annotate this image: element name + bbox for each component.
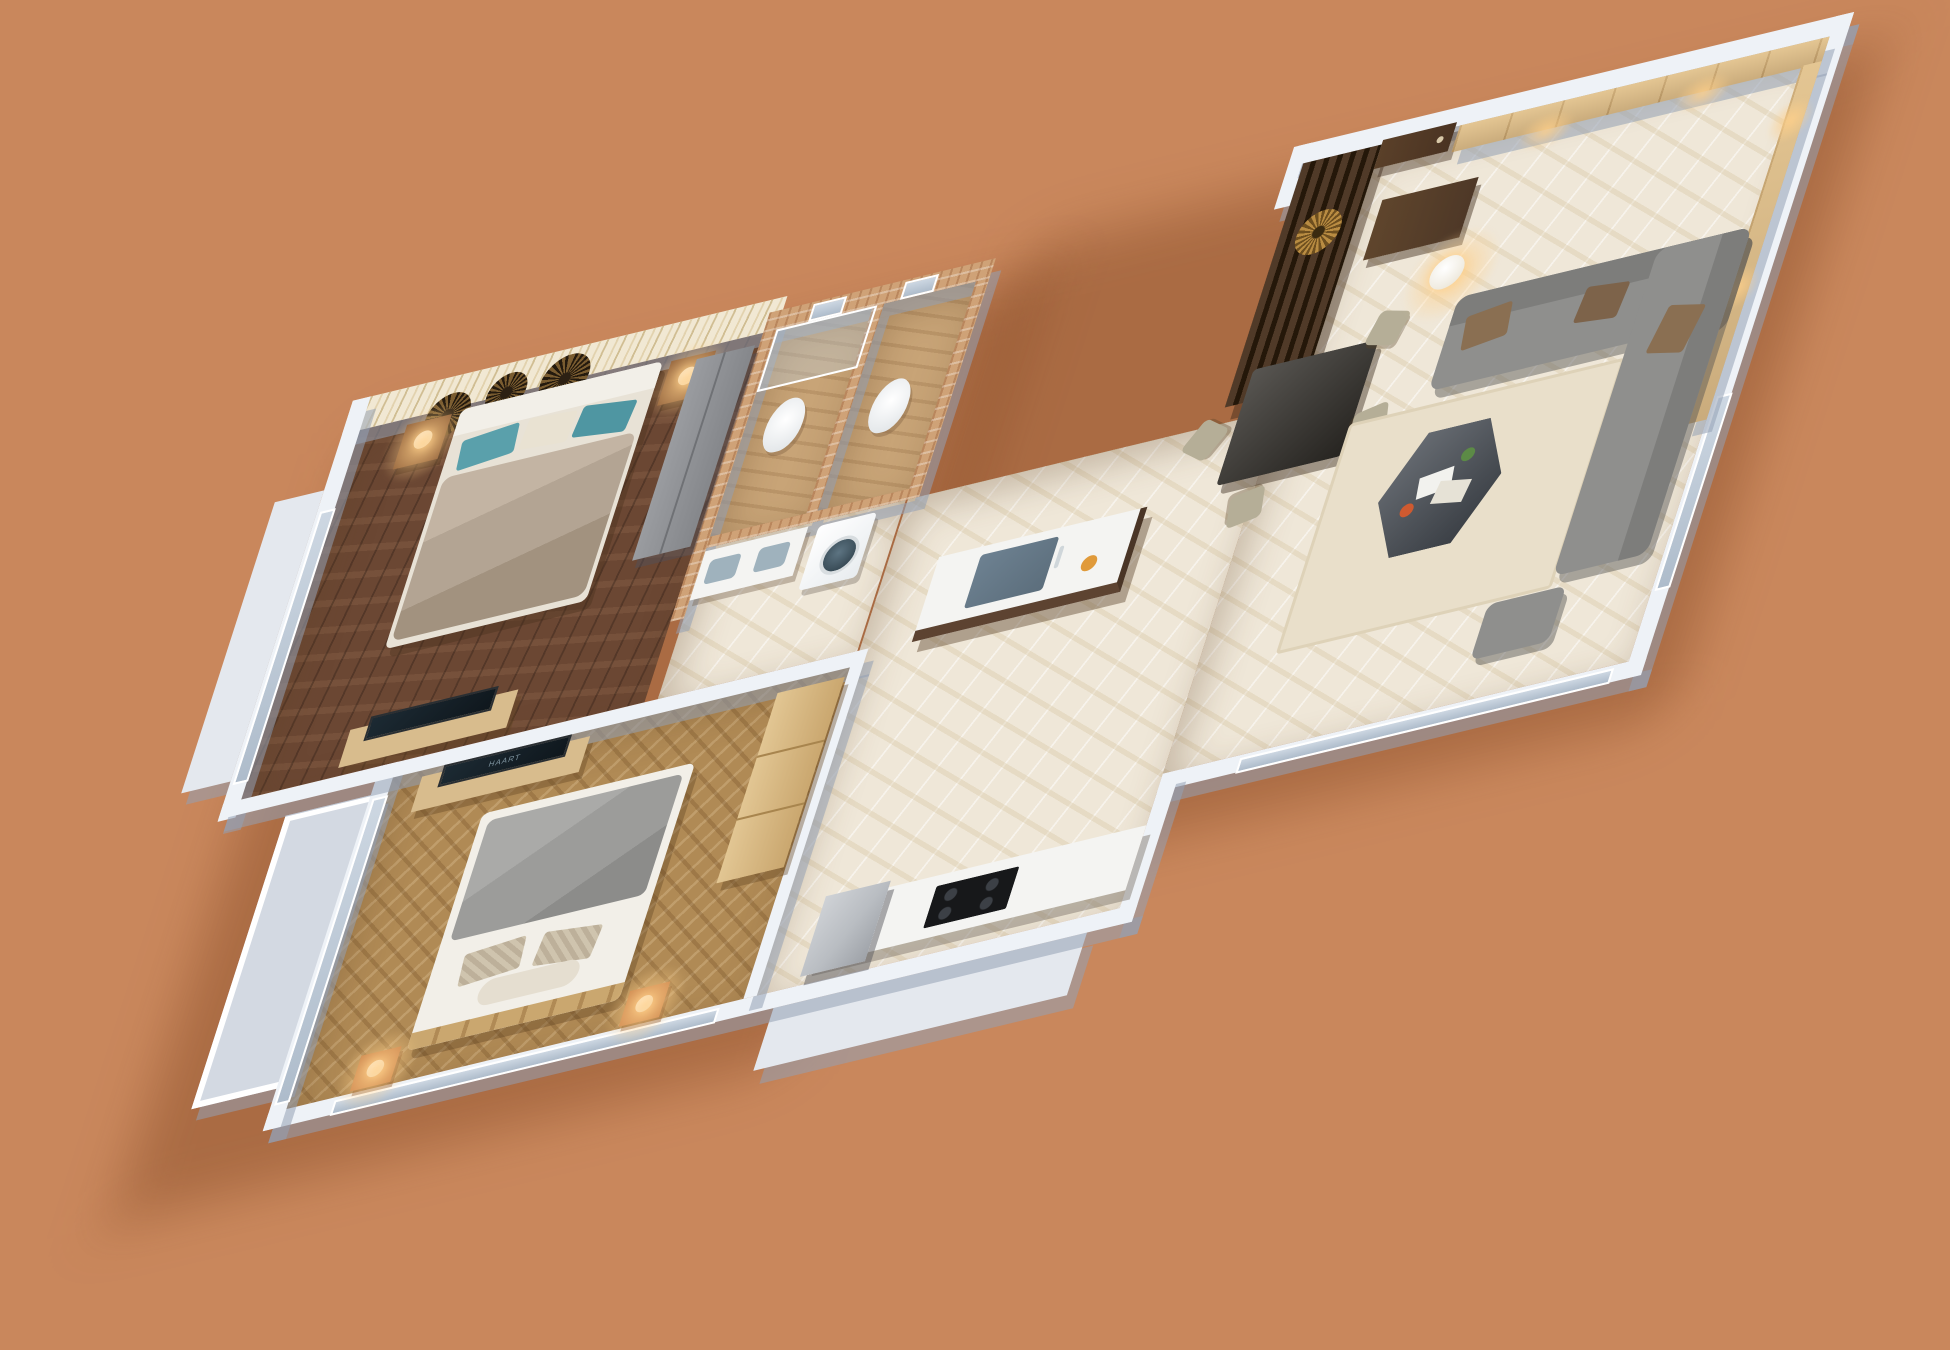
washer-door [814,532,864,579]
wash-basin [703,553,742,585]
decor-bowl [1398,502,1416,519]
kitchen-sink [964,536,1060,609]
gold-sunburst-decor [1289,204,1348,260]
floor-plan-canvas: HAART [0,0,1950,1350]
tv-logo: HAART [487,753,522,769]
dresser-drawer-line [757,740,825,758]
door-handle [1436,136,1445,144]
fruit-bowl [1079,553,1100,572]
plant-pot [1459,446,1477,463]
dresser-drawer-line [737,802,805,820]
wash-basin [752,541,791,573]
isometric-scene: HAART [72,52,1928,1326]
